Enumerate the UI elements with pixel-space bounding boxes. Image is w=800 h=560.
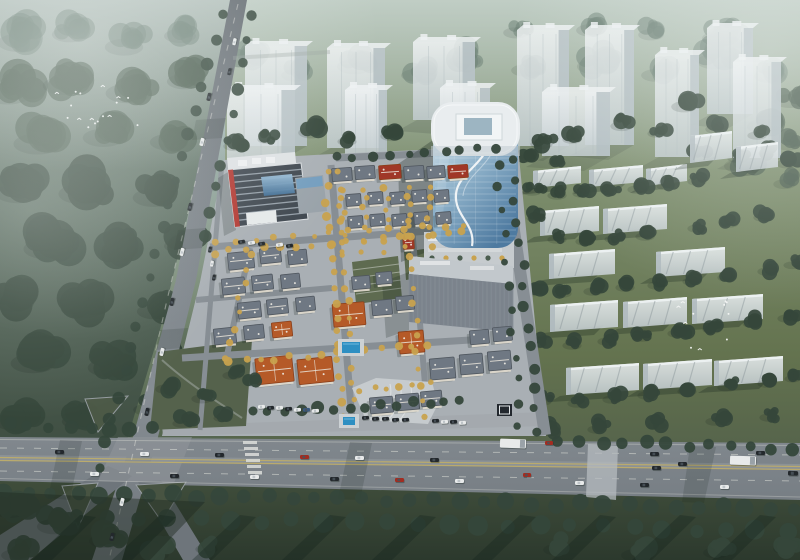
aerial-rendering-stage	[0, 0, 800, 560]
haze-mid-left	[0, 0, 800, 560]
aerial-rendering	[0, 0, 800, 560]
